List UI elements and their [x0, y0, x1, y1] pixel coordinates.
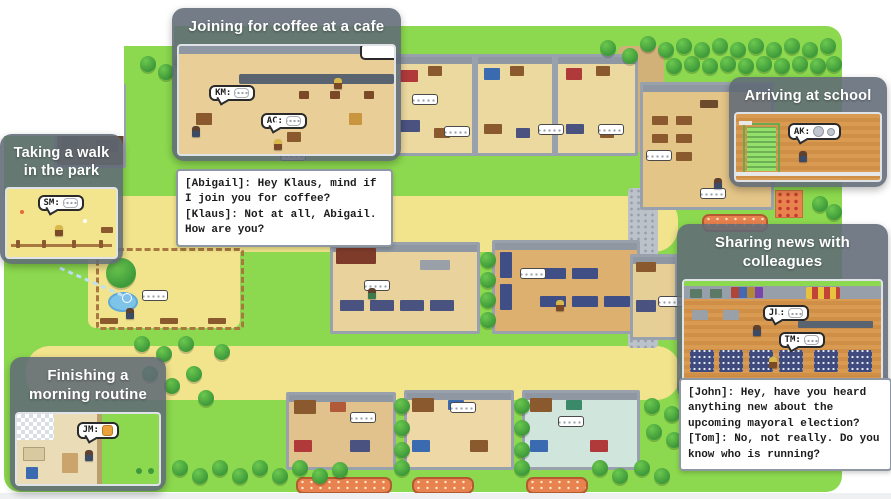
chalkboard	[743, 123, 780, 175]
cafe-table	[287, 132, 301, 142]
mini-speech-bubble	[142, 290, 168, 301]
gray-circle-icon	[827, 128, 835, 136]
tree-icon	[214, 344, 230, 360]
hanging-goods	[806, 287, 840, 299]
furniture-block	[340, 300, 364, 311]
dialogue-box-coffee: [Abigail]: Hey Klaus, mind if I join you…	[176, 169, 393, 247]
agent-sprite	[85, 450, 93, 461]
store-shelf	[814, 350, 838, 372]
furniture-block	[604, 296, 630, 307]
tree-icon	[774, 58, 790, 74]
tree-icon	[212, 460, 228, 476]
callout-school: Arriving at school AK:	[729, 77, 887, 187]
fence-post	[42, 240, 46, 248]
wall-picture	[710, 289, 722, 298]
partial-speech-bubble	[360, 44, 396, 60]
furniture-block	[472, 54, 478, 156]
tree-icon	[784, 38, 800, 54]
tree-icon	[702, 58, 718, 74]
flower	[83, 219, 87, 223]
store-counter	[798, 321, 873, 328]
speech-bubble-jl: JL:	[763, 305, 809, 321]
tree-icon	[592, 460, 608, 476]
tree-icon	[178, 336, 194, 352]
tree-icon	[600, 40, 616, 56]
tree-icon	[394, 420, 410, 436]
callout-scene-home: JM:	[15, 412, 161, 486]
callout-scene-cafe: KM: AC:	[177, 44, 396, 156]
furniture-block	[596, 66, 610, 76]
tree-icon	[666, 58, 682, 74]
chat-dots-icon	[804, 335, 819, 345]
speech-bubble-jm: JM:	[77, 422, 119, 439]
home-furniture	[62, 453, 78, 473]
furniture-block	[566, 68, 582, 80]
tree-icon	[172, 460, 188, 476]
wall-shelf-items	[731, 287, 763, 298]
furniture-block	[566, 400, 582, 410]
tree-icon	[694, 42, 710, 58]
tree-icon	[676, 38, 692, 54]
tree-icon	[514, 420, 530, 436]
mini-speech-bubble	[520, 268, 546, 279]
speech-bubble-ac: AC:	[261, 113, 307, 129]
furniture-block	[330, 402, 346, 412]
furniture-block	[566, 124, 584, 134]
furniture-block	[428, 66, 442, 76]
furniture-block	[510, 66, 524, 76]
furniture-block	[336, 248, 376, 264]
chat-dots-icon	[63, 198, 78, 208]
store-shelf	[779, 350, 803, 372]
furniture-block	[420, 260, 450, 270]
furniture-block	[400, 120, 420, 132]
furniture-block	[470, 440, 488, 452]
callout-title: Sharing news with colleagues	[682, 229, 883, 279]
furniture-block	[294, 440, 312, 452]
tree-icon	[192, 468, 208, 484]
dialogue-line: [Abigail]: Hey Klaus, mind if	[185, 177, 384, 192]
yard-plant	[148, 468, 154, 474]
home-furniture	[23, 447, 45, 461]
tree-icon	[394, 442, 410, 458]
yard-plant	[136, 468, 142, 474]
fence-post	[72, 240, 76, 248]
mini-speech-bubble	[444, 126, 470, 137]
dialogue-line: I join you for coffee?	[185, 192, 384, 207]
tree-icon	[664, 406, 680, 422]
tree-icon	[480, 312, 496, 328]
agent-sprite	[714, 178, 722, 189]
callout-title: Taking a walk in the park	[5, 139, 118, 187]
chat-dots-icon	[788, 308, 803, 318]
furniture-block	[530, 398, 552, 412]
tree-icon	[514, 460, 530, 476]
page-margin	[0, 0, 124, 136]
tree-icon	[480, 272, 496, 288]
furniture-block	[208, 318, 226, 324]
agent-sprite	[334, 78, 342, 89]
furniture-block	[500, 252, 512, 278]
mini-speech-bubble	[538, 124, 564, 135]
dialogue-line: know who is running?	[688, 448, 883, 463]
callout-title: Arriving at school	[734, 82, 882, 112]
dialogue-line: anything new about the	[688, 401, 883, 416]
fence-post	[99, 240, 103, 248]
cafe-stool	[364, 91, 374, 99]
tree-icon	[738, 58, 754, 74]
tree-icon	[332, 462, 348, 478]
flower-bed	[775, 190, 803, 218]
agent-sprite	[274, 139, 282, 150]
tree-icon	[252, 460, 268, 476]
speech-bubble-km: KM:	[209, 85, 255, 101]
speech-bubble-ak: AK:	[788, 123, 841, 140]
tree-icon	[646, 424, 662, 440]
furniture-block	[412, 440, 430, 452]
tree-icon	[186, 366, 202, 382]
school-wall-line	[736, 172, 880, 176]
tree-icon	[684, 56, 700, 72]
cafe-stool	[299, 91, 309, 99]
furniture-block	[370, 300, 394, 311]
building-wall	[395, 57, 635, 64]
agent-sprite	[368, 288, 376, 299]
furniture-block	[676, 134, 692, 143]
mini-speech-bubble	[350, 412, 376, 423]
wall-picture	[690, 289, 702, 298]
tree-icon	[756, 56, 772, 72]
tree-icon	[658, 42, 674, 58]
tree-icon	[712, 38, 728, 54]
tree-icon	[612, 468, 628, 484]
furniture-block	[636, 300, 656, 312]
callout-coffee: Joining for coffee at a cafe KM: AC:	[172, 8, 401, 161]
tree-icon	[634, 460, 650, 476]
tree-icon	[292, 460, 308, 476]
building	[492, 240, 640, 334]
mini-speech-bubble	[412, 94, 438, 105]
mini-speech-bubble	[450, 402, 476, 413]
agent-sprite	[126, 308, 134, 319]
furniture-block	[400, 300, 424, 311]
furniture-block	[676, 152, 692, 161]
tree-icon	[514, 442, 530, 458]
furniture-block	[530, 440, 548, 452]
furniture-block	[400, 70, 418, 82]
tree-icon	[140, 56, 156, 72]
mini-speech-bubble	[700, 188, 726, 199]
agent-sprite	[753, 325, 761, 336]
furniture-block	[652, 134, 668, 143]
sign	[526, 477, 588, 494]
furniture-block	[572, 296, 598, 307]
furniture-block	[590, 440, 608, 452]
callout-title: Joining for coffee at a cafe	[177, 13, 396, 44]
agent-sprite	[799, 151, 807, 162]
building-wall	[495, 243, 637, 250]
page-margin	[124, 0, 174, 46]
tree-icon	[394, 460, 410, 476]
tree-icon	[720, 56, 736, 72]
furniture-block	[412, 398, 434, 412]
furniture-block	[350, 440, 370, 452]
furniture-block	[572, 268, 598, 279]
agent-sprite	[55, 225, 63, 236]
page-bottom-strip	[0, 493, 891, 499]
sign	[296, 477, 392, 494]
callout-routine: Finishing a morning routine JM:	[10, 357, 166, 491]
furniture-block	[484, 68, 500, 80]
tree-icon	[654, 468, 670, 484]
cafe-counter	[239, 74, 394, 84]
store-table	[692, 310, 708, 320]
dialogue-box-news: [John]: Hey, have you heard anything new…	[679, 378, 891, 471]
tree-icon	[164, 378, 180, 394]
furniture-block	[100, 318, 118, 324]
dialogue-line: upcoming mayoral election?	[688, 417, 883, 432]
callout-title: Finishing a morning routine	[15, 362, 161, 412]
tree-icon	[820, 38, 836, 54]
tree-icon	[644, 398, 660, 414]
tree-icon	[232, 468, 248, 484]
flower	[20, 210, 24, 214]
store-table	[723, 310, 739, 320]
park-bench	[101, 227, 113, 233]
orange-box-icon	[102, 425, 113, 436]
tree-icon	[766, 42, 782, 58]
mini-speech-bubble	[558, 416, 584, 427]
store-shelf	[848, 350, 872, 372]
bathroom-tiles	[17, 414, 54, 441]
furniture-block	[516, 128, 530, 138]
cafe-stool	[330, 91, 340, 99]
tree-icon	[134, 336, 150, 352]
tree-icon	[802, 42, 818, 58]
furniture-block	[676, 116, 692, 125]
mini-speech-bubble	[598, 124, 624, 135]
tree-icon	[810, 58, 826, 74]
chat-dots-icon	[234, 88, 249, 98]
callout-scene-park: SM:	[5, 187, 118, 259]
furniture-block	[430, 300, 454, 311]
cafe-table	[196, 113, 212, 125]
home-furniture	[26, 467, 38, 479]
tree-icon	[480, 252, 496, 268]
dialogue-line: [Klaus]: Not at all, Abigail.	[185, 208, 384, 223]
tree-icon	[480, 292, 496, 308]
store-shelf	[719, 350, 743, 372]
tree-icon	[198, 390, 214, 406]
dialogue-line: [John]: Hey, have you heard	[688, 386, 883, 401]
tree-icon	[272, 468, 288, 484]
furniture-block	[636, 262, 656, 272]
furniture-block	[500, 284, 512, 310]
tree-icon	[826, 56, 842, 72]
furniture-block	[552, 54, 558, 156]
furniture-block	[160, 318, 178, 324]
school-wall-line	[739, 121, 752, 125]
gray-circle-icon	[813, 126, 824, 137]
tree-icon	[792, 56, 808, 72]
mini-speech-bubble	[646, 150, 672, 161]
tree-icon	[730, 42, 746, 58]
figure-smallville-map: { "callouts": [ { "id": "coffee", "title…	[0, 0, 891, 499]
dialogue-line: How are you?	[185, 223, 384, 238]
furniture-block	[700, 100, 718, 108]
tree-icon	[514, 398, 530, 414]
agent-sprite	[556, 300, 564, 311]
dialogue-line: [Tom]: No, not really. Do you	[688, 432, 883, 447]
callout-scene-school: AK:	[734, 112, 882, 182]
speech-bubble-sm: SM:	[38, 195, 84, 211]
speech-bubble-tm: TM:	[779, 332, 825, 348]
tree-icon	[312, 468, 328, 484]
callout-news: Sharing news with colleagues JL: TM:	[677, 224, 888, 400]
tree-icon	[622, 48, 638, 64]
callout-walk: Taking a walk in the park SM:	[0, 134, 123, 264]
furniture-block	[484, 124, 502, 134]
sign	[412, 477, 474, 494]
furniture-block	[652, 116, 668, 125]
fence-post	[16, 240, 20, 248]
tree-icon	[748, 38, 764, 54]
agent-sprite	[769, 357, 777, 368]
tree-icon	[394, 398, 410, 414]
tree-icon	[826, 204, 842, 220]
cafe-chair	[349, 113, 362, 125]
park-fence-rail	[11, 244, 111, 247]
tree-icon	[640, 36, 656, 52]
furniture-block	[294, 400, 316, 414]
chat-dots-icon	[286, 116, 301, 126]
agent-sprite	[192, 126, 200, 137]
store-shelf	[690, 350, 714, 372]
